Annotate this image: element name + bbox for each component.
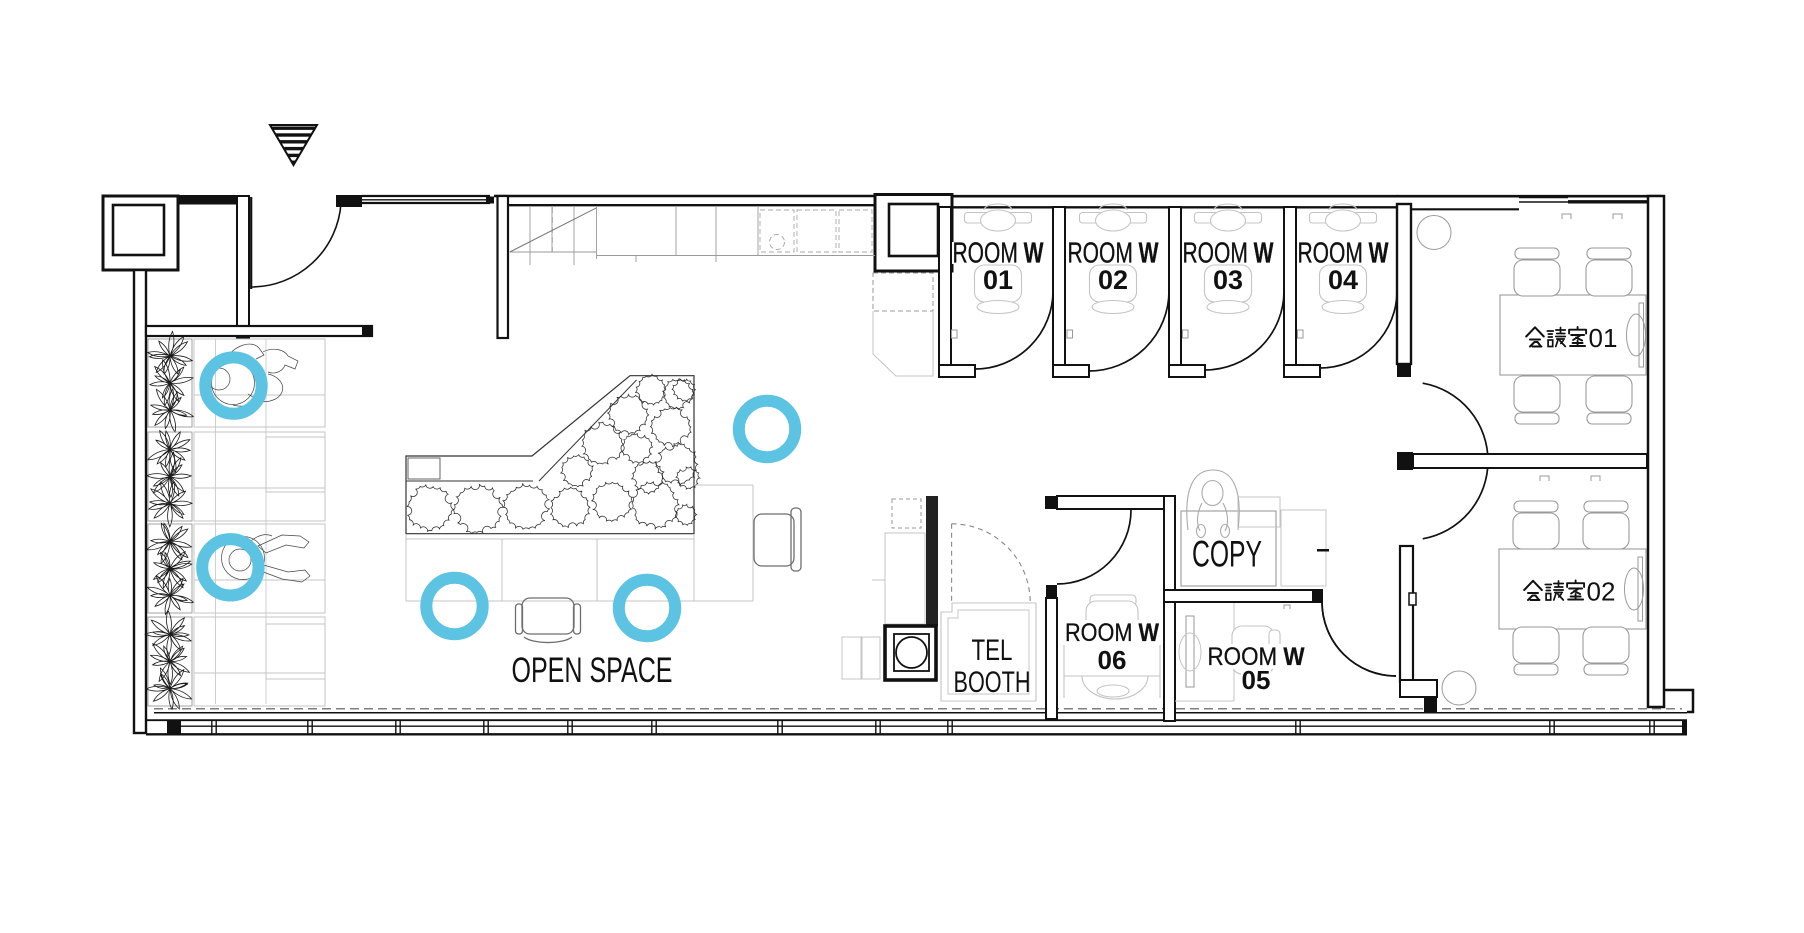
svg-text:01: 01 [1589,323,1618,353]
svg-text:BOOTH: BOOTH [954,666,1031,699]
svg-text:02: 02 [1587,577,1616,607]
svg-text:05: 05 [1242,665,1271,695]
svg-text:02: 02 [1098,265,1128,295]
svg-text:04: 04 [1328,265,1358,295]
svg-text:COPY: COPY [1192,533,1262,575]
svg-text:01: 01 [983,265,1013,295]
svg-text:OPEN SPACE: OPEN SPACE [512,651,673,690]
svg-text:03: 03 [1213,265,1243,295]
svg-text:TEL: TEL [972,634,1013,667]
svg-text:ROOM W: ROOM W [1065,619,1159,647]
svg-text:06: 06 [1098,645,1127,675]
